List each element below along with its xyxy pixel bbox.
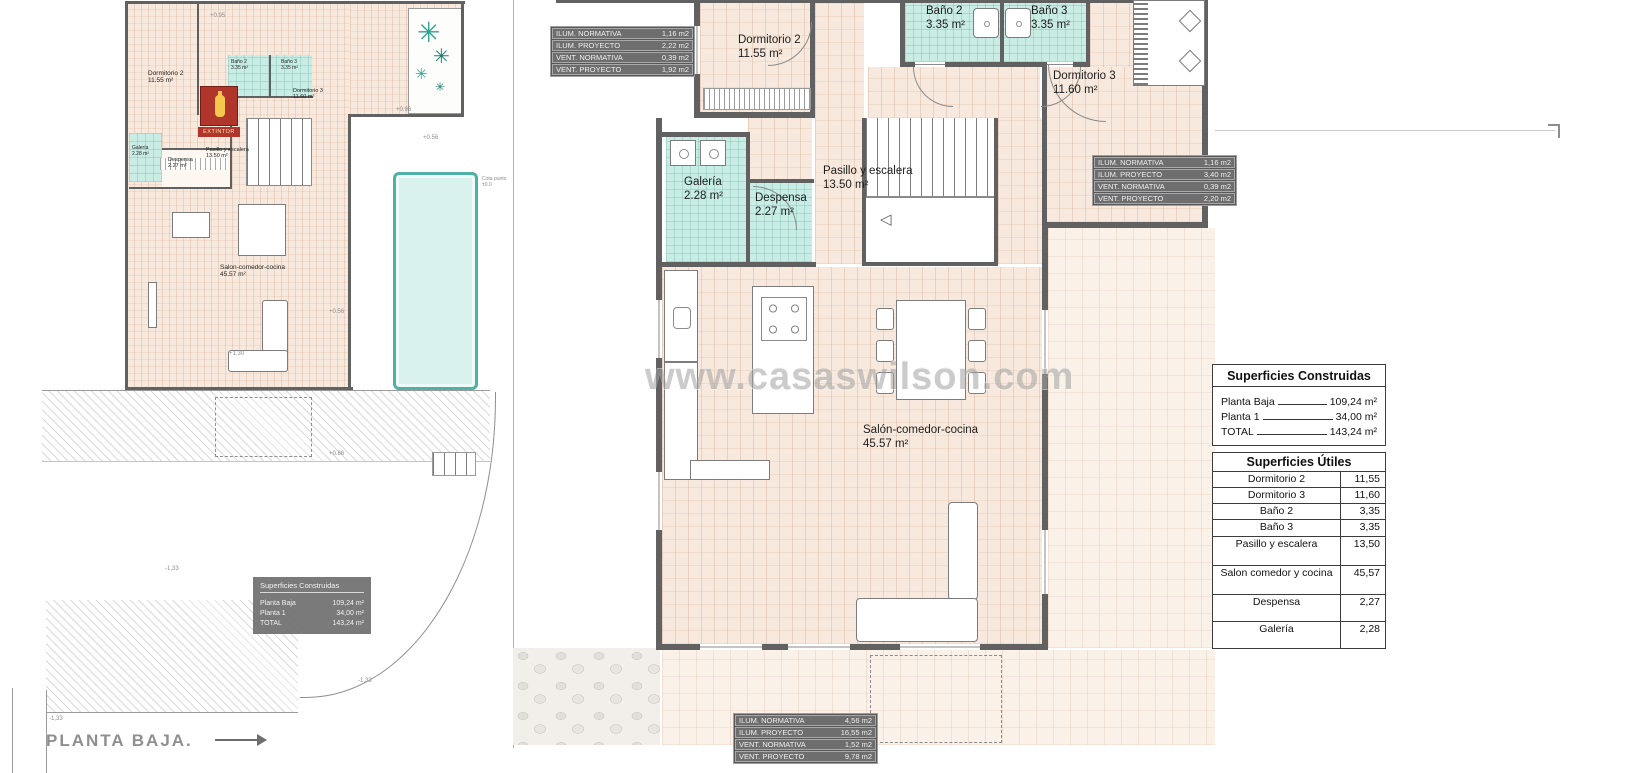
reference-tick xyxy=(1558,124,1560,138)
table-row: VENT. PROYECTO1,92 m2 xyxy=(552,64,693,75)
pergola-dashed xyxy=(215,397,312,457)
room-label: Dormitorio 311.60 m² xyxy=(293,88,323,101)
overview-dining-table xyxy=(238,204,286,256)
table-row: Galería2,28 xyxy=(1213,621,1385,648)
overview-galeria xyxy=(129,133,162,182)
level-mark: +1.30 xyxy=(229,351,244,357)
plan-title: PLANTA BAJA. xyxy=(46,731,193,751)
level-mark: -1,33 xyxy=(165,566,179,572)
room-label: Despensa2.27 m² xyxy=(168,157,193,170)
table-row: ILUM. NORMATIVA4,56 m2 xyxy=(735,715,876,726)
bathroom-sink xyxy=(973,8,999,38)
watermark: www.casaswilson.com xyxy=(645,356,1074,399)
room-label: Galería2.28 m² xyxy=(132,146,149,158)
sofa xyxy=(948,502,978,600)
chair xyxy=(968,308,986,330)
sofa xyxy=(856,598,978,642)
table-row: ILUM. PROYECTO2,22 m2 xyxy=(552,40,693,51)
level-mark: +0.56 xyxy=(423,135,438,141)
swimming-pool xyxy=(393,172,478,390)
env-table-bottom: ILUM. NORMATIVA4,56 m2 ILUM. PROYECTO16,… xyxy=(733,713,878,764)
table-row: Planta 134,00 m² xyxy=(1221,408,1377,423)
env-table-top: ILUM. NORMATIVA1,16 m2 ILUM. PROYECTO2,2… xyxy=(550,26,695,77)
chair xyxy=(876,308,894,330)
room-label: Dormitorio 211.55 m² xyxy=(738,34,801,62)
table-title: Superficies Construidas xyxy=(1213,365,1385,387)
superficies-construidas-table: Superficies Construidas Planta Baja109,2… xyxy=(1212,364,1386,446)
room-label: Pasillo y escalera13.50 m² xyxy=(823,165,912,193)
tv-bench xyxy=(690,460,770,480)
extintor-label: EXTINTOR xyxy=(198,127,240,137)
extintor-icon xyxy=(200,86,238,126)
overview-superficies-table: Superficies Construidas Planta Baja109,2… xyxy=(253,577,371,634)
floorplan-sheet: ✳ ✳ ✳ ✳ xyxy=(0,0,1638,773)
palm-plant-icon: ✳ xyxy=(415,67,428,82)
room-label: Despensa2.27 m² xyxy=(755,192,807,220)
table-row: ILUM. NORMATIVA1,16 m2 xyxy=(552,28,693,39)
kitchen-counter xyxy=(664,270,698,362)
dryer xyxy=(700,140,726,166)
cota-note: Cota punto ±0.0 xyxy=(482,176,516,188)
table-row: Dormitorio 311,60 xyxy=(1213,487,1385,503)
env-table-right: ILUM. NORMATIVA1,16 m2 ILUM. PROYECTO3,4… xyxy=(1092,155,1237,206)
table-row: VENT. PROYECTO2,20 m2 xyxy=(1094,193,1235,204)
cooktop xyxy=(761,297,807,341)
table-row: Salon comedor y cocina45,57 xyxy=(1213,565,1385,594)
table-row: VENT. NORMATIVA0,39 m2 xyxy=(552,52,693,63)
table-row: TOTAL143,24 m² xyxy=(1221,423,1377,438)
room-label: Baño 33.35 m² xyxy=(1031,5,1070,33)
table-row: VENT. NORMATIVA1,52 m2 xyxy=(735,739,876,750)
bed xyxy=(1133,0,1205,86)
palm-plant-icon: ✳ xyxy=(435,81,445,93)
washer xyxy=(670,140,696,166)
stair-direction-arrow: ◁ xyxy=(880,210,892,228)
room-label: Baño 23.35 m² xyxy=(926,5,965,33)
superficies-utiles-table: Superficies Útiles Dormitorio 211,55 Dor… xyxy=(1212,452,1386,649)
table-row: Planta 134,00 m² xyxy=(260,609,364,619)
table-row: ILUM. PROYECTO16,55 m2 xyxy=(735,727,876,738)
table-row: VENT. PROYECTO9,78 m2 xyxy=(735,751,876,762)
corridor-floor xyxy=(815,0,864,264)
stair-hall-floor xyxy=(998,118,1042,264)
terrace-dashed-structure xyxy=(870,655,1002,743)
table-row: Planta Baja109,24 m² xyxy=(1221,393,1377,408)
level-mark: -1,33 xyxy=(49,716,63,722)
level-mark: +0.95 xyxy=(210,13,225,19)
plot-boundary-curve xyxy=(300,392,496,698)
room-label: Dormitorio 211.55 m² xyxy=(148,70,183,85)
table-row: ILUM. PROYECTO3,40 m2 xyxy=(1094,169,1235,180)
room-label: Baño 23.35 m² xyxy=(231,60,248,72)
table-row: Planta Baja109,24 m² xyxy=(260,599,364,609)
room-label: Baño 33.35 m² xyxy=(281,60,298,72)
hall-floor xyxy=(868,67,1040,118)
ground-floor-overview-plan: ✳ ✳ ✳ ✳ xyxy=(0,0,512,773)
overview-staircase xyxy=(246,118,312,186)
overview-patio: ✳ ✳ ✳ ✳ xyxy=(408,8,462,114)
table-row: Dormitorio 211,55 xyxy=(1213,471,1385,487)
table-row: Baño 23,35 xyxy=(1213,503,1385,519)
table-row: VENT. NORMATIVA0,39 m2 xyxy=(1094,181,1235,192)
room-label: Pasillo y escalera13.50 m² xyxy=(206,147,249,160)
despensa-hall-floor xyxy=(748,118,812,181)
north-arrow xyxy=(215,739,259,741)
overview-tv-bench xyxy=(148,282,157,328)
palm-plant-icon: ✳ xyxy=(433,47,450,67)
boundary-line xyxy=(12,688,13,773)
extintor-sign: EXTINTOR xyxy=(200,86,238,139)
bathroom-sink xyxy=(1005,8,1031,38)
side-terrace-floor xyxy=(1048,228,1215,648)
table-row: TOTAL143,24 m² xyxy=(260,619,364,629)
reference-line xyxy=(1215,130,1555,131)
table-row: Despensa2,27 xyxy=(1213,594,1385,621)
table-row: Pasillo y escalera13,50 xyxy=(1213,536,1385,565)
room-label: Salon-comedor-cocina45.57 m² xyxy=(220,264,285,279)
pillow xyxy=(1179,10,1202,33)
table-row: Baño 33,35 xyxy=(1213,519,1385,535)
table-row: ILUM. NORMATIVA1,16 m2 xyxy=(1094,157,1235,168)
wardrobe xyxy=(703,88,811,110)
table-title: Superficies Útiles xyxy=(1213,453,1385,471)
palm-plant-icon: ✳ xyxy=(417,19,440,47)
pillow xyxy=(1179,50,1202,73)
level-mark: +0.96 xyxy=(396,107,411,113)
overview-kitchen-island xyxy=(172,212,210,238)
level-mark: +0.56 xyxy=(329,309,344,315)
room-label: Salón-comedor-cocina45.57 m² xyxy=(863,424,978,452)
table-title: Superficies Construidas xyxy=(260,581,364,593)
room-label: Dormitorio 311.60 m² xyxy=(1053,70,1116,98)
stone-border xyxy=(513,648,660,745)
room-label: Galería2.28 m² xyxy=(684,176,723,204)
